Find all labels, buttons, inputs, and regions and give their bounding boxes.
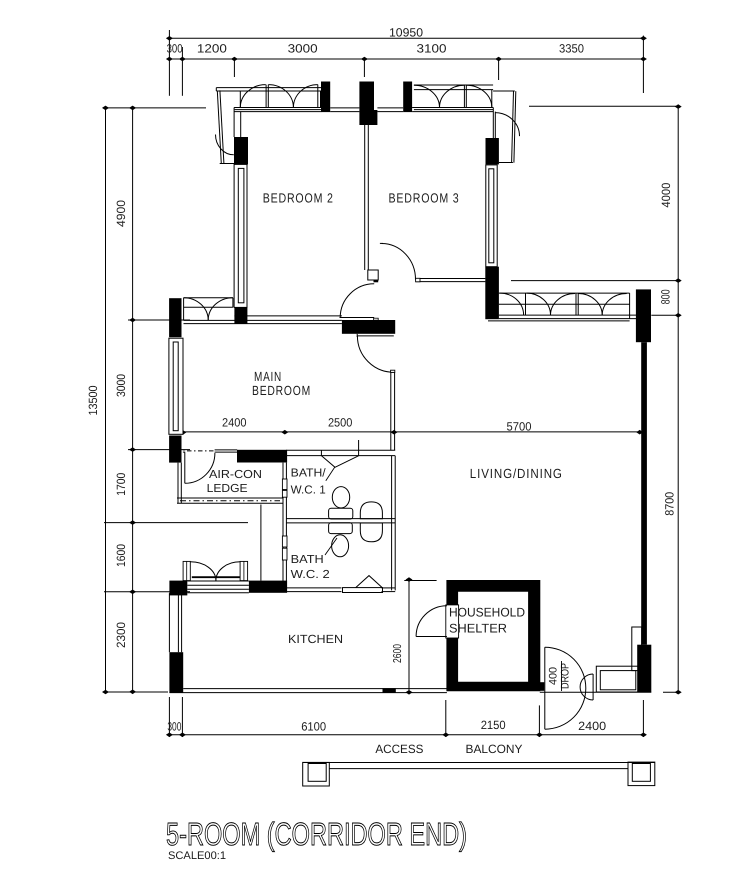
svg-text:BATH: BATH [291,553,324,566]
svg-text:2400: 2400 [222,416,247,430]
svg-text:ACCESS: ACCESS [375,742,423,756]
svg-text:BEDROOM: BEDROOM [252,383,311,398]
svg-text:W.C. 2: W.C. 2 [291,568,330,581]
svg-text:300: 300 [167,42,183,56]
svg-text:2400: 2400 [578,719,606,733]
svg-text:6100: 6100 [301,719,326,733]
svg-text:BATH/: BATH/ [291,466,327,479]
svg-text:AIR-CON: AIR-CON [209,468,262,481]
svg-text:400: 400 [547,667,559,685]
svg-text:5700: 5700 [507,419,532,433]
svg-text:1600: 1600 [114,544,128,567]
svg-text:2600: 2600 [392,644,404,663]
svg-text:SHELTER: SHELTER [449,622,507,636]
svg-text:3000: 3000 [288,42,318,56]
svg-text:KITCHEN: KITCHEN [288,632,343,646]
svg-text:LIVING/DINING: LIVING/DINING [470,466,563,481]
svg-text:HOUSEHOLD: HOUSEHOLD [449,605,525,619]
svg-text:3000: 3000 [114,374,128,397]
svg-text:2150: 2150 [481,718,506,732]
svg-text:4900: 4900 [114,200,128,227]
svg-text:2500: 2500 [328,416,353,430]
svg-text:10950: 10950 [389,26,423,40]
svg-text:13500: 13500 [86,385,100,415]
svg-text:8700: 8700 [662,492,676,516]
svg-text:SCALE00:1: SCALE00:1 [168,850,226,862]
svg-text:2300: 2300 [114,622,128,648]
svg-text:BEDROOM 3: BEDROOM 3 [389,191,460,206]
svg-text:BEDROOM 2: BEDROOM 2 [263,191,334,206]
svg-text:4000: 4000 [659,182,673,207]
svg-text:3350: 3350 [559,42,584,56]
svg-text:800: 800 [658,289,672,304]
svg-text:5-ROOM (CORRIDOR END): 5-ROOM (CORRIDOR END) [166,816,467,852]
svg-text:3100: 3100 [417,42,447,56]
svg-text:300: 300 [167,719,181,733]
svg-text:1700: 1700 [114,472,128,495]
svg-text:LEDGE: LEDGE [207,482,248,495]
svg-text:1200: 1200 [197,42,227,56]
svg-text:BALCONY: BALCONY [466,742,523,756]
svg-text:W.C. 1: W.C. 1 [291,483,326,496]
